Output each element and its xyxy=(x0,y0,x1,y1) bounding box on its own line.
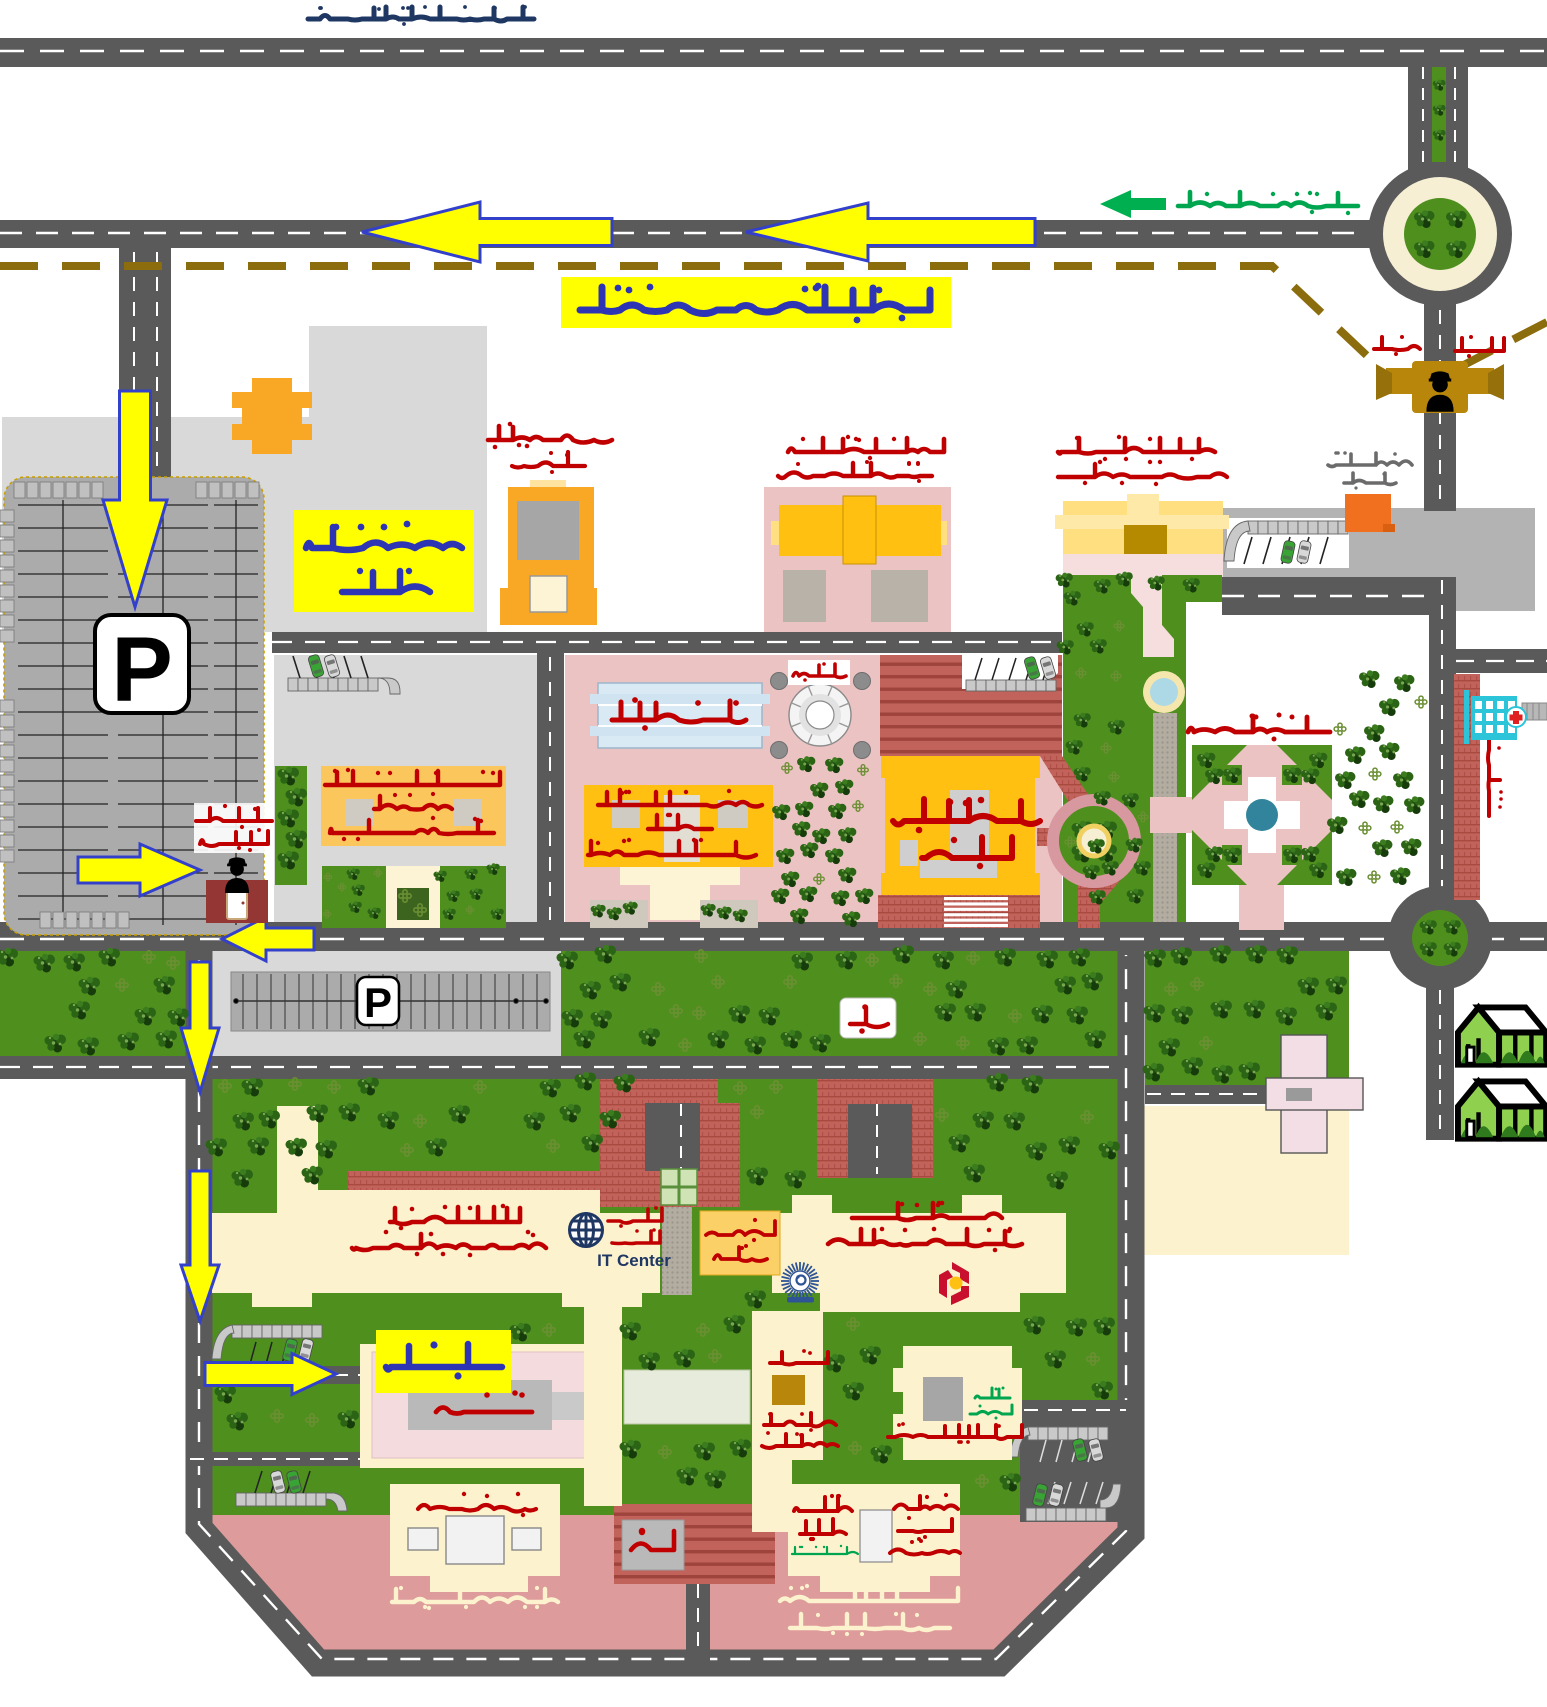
svg-text:P: P xyxy=(111,619,172,721)
svg-text:P: P xyxy=(364,979,392,1026)
svg-text:IT Center: IT Center xyxy=(597,1251,671,1270)
